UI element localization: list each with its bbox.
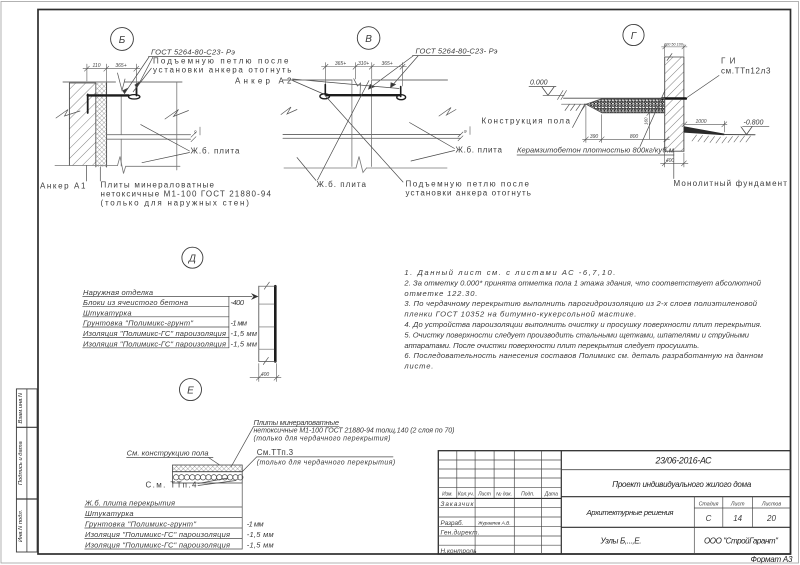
svg-text:Штукатурка: Штукатурка — [85, 509, 134, 518]
svg-text:1000: 1000 — [695, 119, 706, 125]
svg-text:4. До устройства пароизоляции: 4. До устройства пароизоляции выполнить … — [404, 320, 762, 329]
svg-text:см.ТТп12л3: см.ТТп12л3 — [721, 67, 771, 76]
svg-text:390: 390 — [590, 134, 599, 140]
svg-text:6. Последовательность нанесени: 6. Последовательность нанесения составов… — [404, 351, 763, 360]
svg-text:310+: 310+ — [358, 61, 369, 67]
svg-text:Архитектурные решения: Архитектурные решения — [586, 508, 674, 517]
svg-text:нетоксичные М1-100 ГОСТ 21880-: нетоксичные М1-100 ГОСТ 21880-94 — [101, 190, 272, 199]
svg-text:110: 110 — [93, 63, 101, 69]
svg-text:400: 400 — [261, 372, 270, 378]
svg-text:Е: Е — [187, 386, 194, 397]
svg-text:Конструкция пола: Конструкция пола — [482, 117, 571, 126]
svg-text:365+: 365+ — [335, 61, 346, 67]
svg-text:100 50 100: 100 50 100 — [664, 43, 684, 47]
svg-text:Анкер А1: Анкер А1 — [40, 182, 86, 191]
svg-text:аппаратами. После очистки пове: аппаратами. После очистки поверхности пл… — [404, 341, 699, 350]
svg-text:Монолитный фундамент: Монолитный фундамент — [674, 179, 788, 188]
svg-text:пленки ГОСТ 10352 на битумно-к: пленки ГОСТ 10352 на битумно-кукерсольно… — [404, 310, 636, 319]
svg-text:800: 800 — [630, 134, 639, 140]
svg-text:Лист: Лист — [477, 491, 491, 497]
svg-text:Н.контроль: Н.контроль — [441, 548, 477, 555]
svg-text:Ж.б. плита перекрытия: Ж.б. плита перекрытия — [84, 498, 175, 507]
svg-text:Грунтовка "Полимикс-грунт": Грунтовка "Полимикс-грунт" — [85, 519, 196, 528]
svg-text:№ док.: № док. — [496, 491, 512, 497]
svg-text:365+: 365+ — [381, 61, 392, 67]
svg-text:Подъемную петлю после: Подъемную петлю после — [406, 180, 530, 189]
svg-text:Плиты минераловатные: Плиты минераловатные — [101, 181, 215, 190]
svg-text:С.м. ТТп.4: С.м. ТТп.4 — [146, 480, 198, 489]
svg-text:ООО "СтройГарант": ООО "СтройГарант" — [704, 536, 779, 545]
svg-text:ГОСТ 5264-80-С23- Рэ: ГОСТ 5264-80-С23- Рэ — [151, 48, 235, 57]
svg-text:установки анкера отогнуть: установки анкера отогнуть — [406, 189, 532, 198]
svg-text:Изоляция "Полимикс-ГС" пароизо: Изоляция "Полимикс-ГС" пароизоляция — [85, 530, 230, 539]
svg-text:Изм.: Изм. — [442, 491, 453, 497]
svg-text:-1,5 мм: -1,5 мм — [231, 329, 258, 338]
svg-text:365+: 365+ — [115, 63, 126, 69]
svg-text:Подпись и дата: Подпись и дата — [18, 441, 24, 486]
svg-text:Штукатурка: Штукатурка — [83, 308, 132, 317]
svg-text:1. Данный лист см. с листами: 1. Данный лист см. с листами АС -6,7,10. — [404, 268, 615, 277]
svg-text:Формат А3: Формат А3 — [751, 555, 794, 564]
svg-text:23/06-2016-АС: 23/06-2016-АС — [655, 455, 713, 465]
svg-text:Взам.инв.N: Взам.инв.N — [18, 392, 24, 423]
svg-text:Изоляция "Полимикс-ГС" пароизо: Изоляция "Полимикс-ГС" пароизоляция — [85, 540, 230, 549]
svg-text:-1,5 мм: -1,5 мм — [231, 339, 258, 348]
svg-text:Керамзитобетон плотностью 800к: Керамзитобетон плотностью 800кг/куб.м — [517, 146, 674, 155]
svg-text:Листов: Листов — [761, 501, 782, 507]
svg-text:Ген.директ.: Ген.директ. — [441, 528, 480, 536]
svg-text:-1,5 мм: -1,5 мм — [247, 540, 274, 549]
svg-text:нетоксичные М1-100 ГОСТ 21880-: нетоксичные М1-100 ГОСТ 21880-94 толщ.14… — [254, 428, 455, 435]
svg-text:0.000: 0.000 — [530, 80, 548, 87]
svg-text:Заказчик: Заказчик — [441, 501, 475, 508]
svg-text:-400: -400 — [231, 298, 245, 307]
svg-text:3. По чердачному перекрытию вы: 3. По чердачному перекрытию выполнить па… — [404, 299, 757, 308]
svg-text:Ж.б. плита: Ж.б. плита — [456, 146, 503, 155]
svg-text:Журавлев А.В.: Журавлев А.В. — [477, 520, 511, 526]
svg-text:Подп.: Подп. — [521, 491, 534, 497]
svg-text:14: 14 — [733, 514, 742, 523]
svg-text:-1,5 мм: -1,5 мм — [247, 530, 274, 539]
svg-text:Изоляция "Полимикс-ГС" пароизо: Изоляция "Полимикс-ГС" пароизоляция — [83, 339, 226, 348]
svg-text:Ж.б. плита: Ж.б. плита — [317, 180, 367, 189]
svg-text:установки анкера отогнуть: установки анкера отогнуть — [153, 66, 292, 75]
svg-text:В: В — [365, 34, 372, 45]
svg-text:5. Очистку поверхности следует: 5. Очистку поверхности следует производи… — [404, 330, 749, 339]
svg-text:(только для чердачного перекры: (только для чердачного перекрытия) — [257, 458, 396, 466]
svg-text:Б: Б — [119, 35, 126, 46]
svg-text:Наружная отделка: Наружная отделка — [83, 288, 153, 297]
svg-text:Изоляция "Полимикс-ГС" пароизо: Изоляция "Полимикс-ГС" пароизоляция — [83, 329, 226, 338]
svg-text:Разраб.: Разраб. — [441, 519, 464, 527]
svg-text:Д: Д — [188, 254, 196, 265]
svg-text:-1 мм: -1 мм — [247, 519, 264, 528]
svg-text:ГОСТ 5264-80-С23- Рэ: ГОСТ 5264-80-С23- Рэ — [416, 47, 498, 56]
svg-text:С: С — [706, 514, 712, 523]
svg-text:(только для наружных стен): (только для наружных стен) — [101, 199, 250, 208]
svg-text:Дата: Дата — [544, 491, 558, 497]
svg-text:Лист: Лист — [730, 501, 745, 507]
svg-text:Плиты минераловатные: Плиты минераловатные — [254, 418, 340, 427]
svg-text:400: 400 — [666, 158, 675, 164]
svg-text:См.ТТп.3: См.ТТп.3 — [257, 448, 294, 457]
svg-text:160: 160 — [644, 117, 649, 125]
svg-text:См. конструкцию пола: См. конструкцию пола — [127, 449, 209, 458]
svg-text:Узлы Б,...,Е.: Узлы Б,...,Е. — [600, 536, 642, 545]
svg-text:Кол.уч.: Кол.уч. — [458, 491, 474, 497]
svg-text:Грунтовка "Полимикс-грунт": Грунтовка "Полимикс-грунт" — [83, 319, 193, 328]
svg-text:Проект индивидуального жилого: Проект индивидуального жилого дома — [612, 480, 752, 489]
svg-text:-1 мм: -1 мм — [231, 319, 248, 328]
svg-text:Подъемную петлю после: Подъемную петлю после — [153, 57, 289, 66]
svg-text:(только для чердачного перекры: (только для чердачного перекрытия) — [254, 434, 391, 442]
svg-text:Стадия: Стадия — [699, 501, 719, 507]
svg-text:2. За отметку 0.000* принята о: 2. За отметку 0.000* принята отметка пол… — [403, 278, 761, 287]
svg-text:-0.800: -0.800 — [744, 119, 764, 126]
svg-text:Блоки из ячеистого бетона: Блоки из ячеистого бетона — [83, 298, 188, 307]
svg-text:листе.: листе. — [403, 362, 433, 371]
svg-text:Ж.б. плита: Ж.б. плита — [191, 147, 241, 156]
svg-text:Инв.N подл.: Инв.N подл. — [18, 510, 24, 542]
svg-text:отметке 122.30.: отметке 122.30. — [404, 289, 477, 298]
svg-text:20: 20 — [766, 514, 776, 523]
